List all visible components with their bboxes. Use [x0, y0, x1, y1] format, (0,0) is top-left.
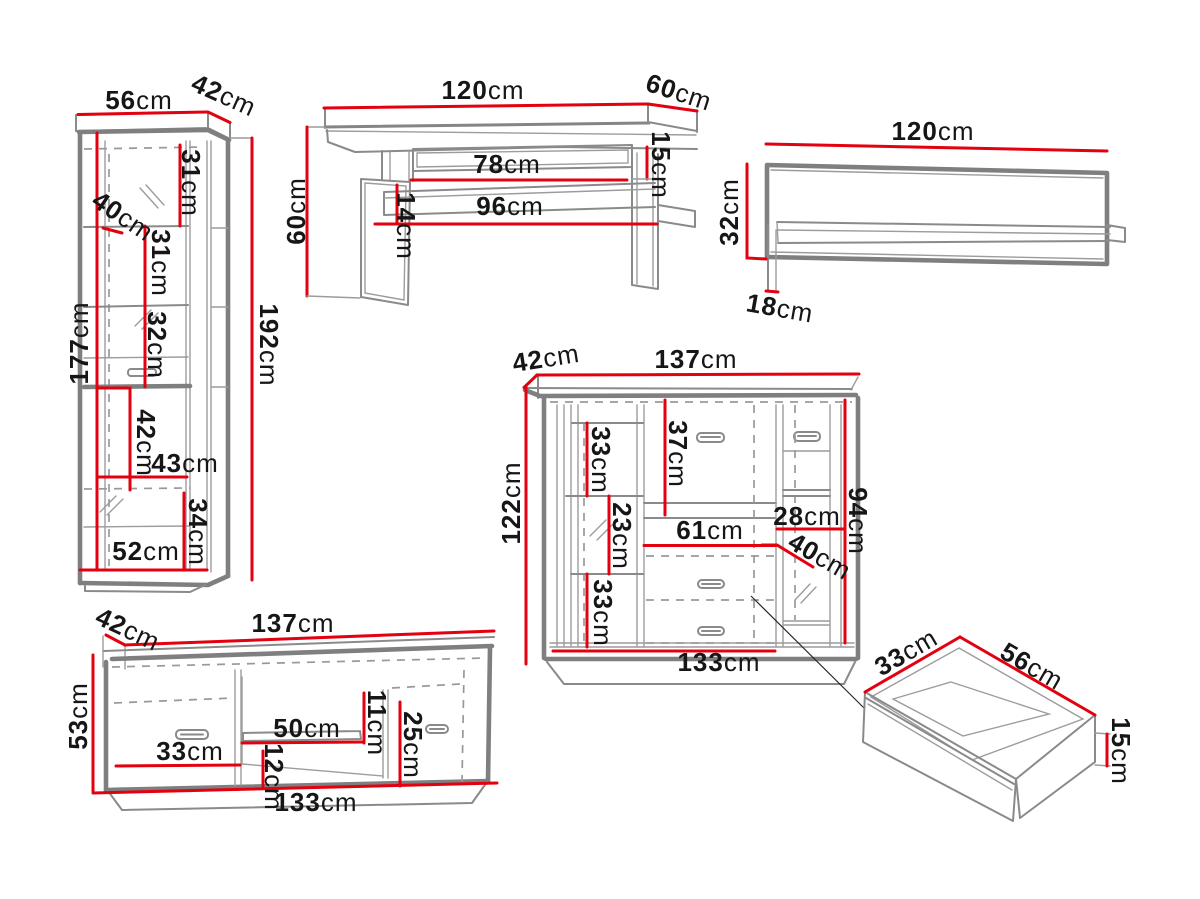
- svg-text:137cm: 137cm: [251, 608, 334, 638]
- svg-text:15cm: 15cm: [646, 131, 676, 199]
- svg-text:11cm: 11cm: [362, 690, 392, 756]
- svg-text:52cm: 52cm: [112, 536, 180, 566]
- svg-text:120cm: 120cm: [891, 116, 974, 146]
- svg-text:96cm: 96cm: [476, 191, 544, 221]
- svg-text:32cm: 32cm: [714, 178, 744, 246]
- svg-text:18cm: 18cm: [744, 287, 816, 328]
- svg-text:15cm: 15cm: [1106, 717, 1136, 785]
- svg-text:177cm: 177cm: [64, 301, 94, 384]
- svg-text:23cm: 23cm: [607, 502, 637, 570]
- svg-text:32cm: 32cm: [142, 311, 172, 379]
- svg-text:53cm: 53cm: [63, 682, 93, 750]
- svg-text:192cm: 192cm: [254, 303, 284, 386]
- svg-text:14cm: 14cm: [391, 192, 421, 260]
- svg-text:42cm: 42cm: [91, 601, 165, 657]
- svg-text:25cm: 25cm: [398, 711, 428, 779]
- svg-text:56cm: 56cm: [995, 636, 1069, 696]
- svg-text:28cm: 28cm: [773, 501, 841, 531]
- svg-text:61cm: 61cm: [676, 515, 744, 545]
- svg-text:34cm: 34cm: [183, 498, 213, 566]
- svg-text:31cm: 31cm: [176, 149, 206, 217]
- svg-text:133cm: 133cm: [677, 647, 760, 677]
- svg-text:33cm: 33cm: [588, 579, 618, 647]
- svg-text:43cm: 43cm: [151, 448, 219, 478]
- svg-text:133cm: 133cm: [274, 787, 357, 817]
- svg-text:120cm: 120cm: [441, 75, 524, 105]
- svg-text:33cm: 33cm: [586, 426, 616, 494]
- svg-text:94cm: 94cm: [843, 487, 873, 555]
- svg-text:37cm: 37cm: [663, 420, 693, 488]
- svg-text:33cm: 33cm: [869, 622, 943, 682]
- svg-text:50cm: 50cm: [273, 713, 341, 743]
- svg-text:122cm: 122cm: [496, 461, 526, 544]
- svg-text:78cm: 78cm: [473, 149, 541, 179]
- svg-text:137cm: 137cm: [654, 344, 737, 374]
- svg-text:31cm: 31cm: [146, 229, 176, 297]
- svg-text:42cm: 42cm: [510, 338, 581, 378]
- svg-text:33cm: 33cm: [156, 736, 224, 766]
- svg-text:60cm: 60cm: [281, 177, 311, 245]
- svg-text:42cm: 42cm: [187, 68, 261, 123]
- svg-text:56cm: 56cm: [105, 85, 173, 115]
